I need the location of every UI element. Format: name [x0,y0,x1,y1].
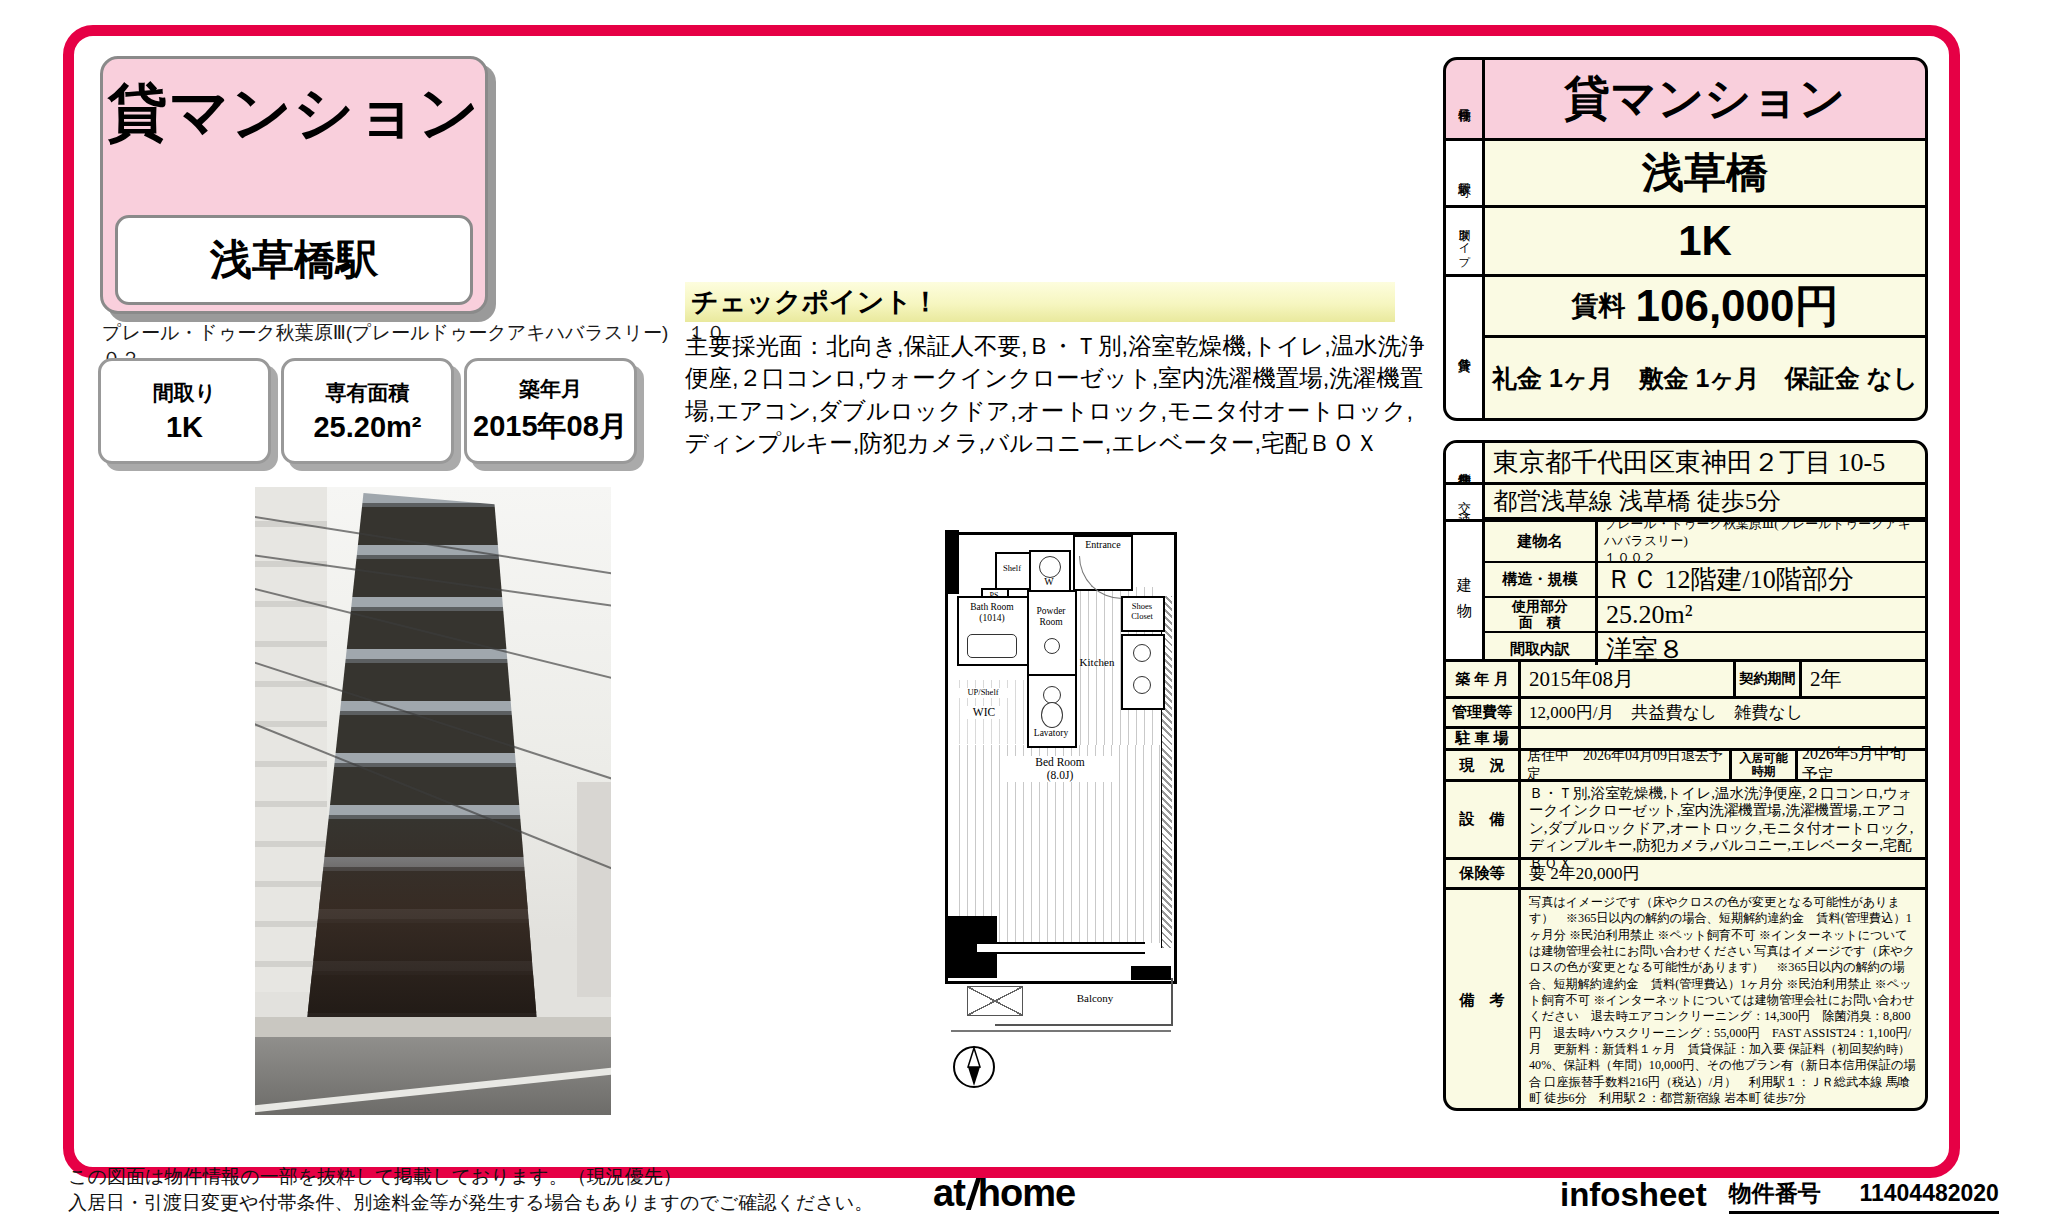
info-box-label: 築年月 [519,375,582,403]
summary-layout-type: 1K [1485,208,1925,274]
athome-logo: at home [933,1172,1075,1215]
detail-status: 居住中 2026年04月09日退去予定 [1521,751,1729,779]
info-box-value: 2015年08月 [473,407,628,447]
room-shoes-closet: Shoes Closet [1121,596,1165,632]
row-label-status: 現 況 [1446,751,1521,779]
room-label-powder: Powder Room [1029,606,1073,627]
summary-table: 物件種目 貸マンション 最寄駅 浅草橋 間取タイプ 1K 賃貸条件 賃料 106… [1443,57,1928,421]
checkpoint-heading-band: チェックポイント！ [685,282,1395,322]
detail-access: 都営浅草線 浅草橋 徒歩5分 [1485,485,1925,517]
summary-station: 浅草橋 [1485,141,1925,205]
checkpoint-body: 主要採光面：北向き,保証人不要,Ｂ・Ｔ別,浴室乾燥機,トイレ,温水洗浄便座,２口… [685,330,1433,460]
info-box-label: 間取り [153,379,217,407]
room-label-bath: Bath Room (1014) [961,602,1023,623]
detail-fees: 12,000円/月 共益費なし 雑費なし [1521,699,1925,726]
info-box-value: 25.20m² [313,411,421,444]
property-number: 物件番号 11404482020 [1729,1178,1999,1214]
row-label-parking: 駐 車 場 [1446,729,1521,748]
sublabel-contract: 契約期間 [1733,662,1799,696]
row-label-equipment: 設 備 [1446,782,1521,857]
photo-sidewalk [255,1017,611,1037]
detail-equipment: Ｂ・Ｔ別,浴室乾燥機,トイレ,温水洗浄便座,２口コンロ,ウォークインクローゼット… [1521,782,1925,857]
row-label-property-type: 物件種目 [1446,60,1482,138]
room-label-lavatory: Lavatory [1029,728,1073,739]
info-box-label: 専有面積 [326,379,410,407]
row-label-notes: 備 考 [1446,890,1521,1110]
building-photo [255,487,611,1115]
room-label-bedroom: Bed Room (8.0J) [1005,756,1115,782]
sublabel-movein: 入居可能 時期 [1729,751,1795,779]
athome-logo-at: at [933,1172,965,1215]
bedroom-window [977,942,1145,954]
sublabel-structure: 構造・規模 [1485,563,1595,596]
detail-address: 東京都千代田区東神田２丁目 10-5 [1482,443,1925,482]
title-box: 貸マンション 浅草橋駅 [100,56,488,314]
room-label-balcony: Balcony [1055,992,1135,1004]
row-label-fees: 管理費等 [1446,699,1521,726]
infosheet-block: infosheet 物件番号 11404482020 [1560,1176,1999,1214]
toilet-bowl-icon [1041,702,1063,728]
washer-icon [1039,556,1061,578]
info-box-madori: 間取り 1K [98,358,271,464]
room-label-upshelf: UP/Shelf [955,688,1011,698]
room-lavatory: Lavatory [1027,674,1077,748]
detail-area: 25.20m² [1595,598,1925,631]
detail-building-name: プレール・ドゥーク秋葉原Ⅲ(プレールドゥークアキハバラスリー) １００２ [1595,522,1925,561]
row-label-station: 最寄駅 [1446,141,1482,205]
checkpoint-heading: チェックポイント！ [685,284,939,320]
infosheet-label: infosheet [1560,1176,1707,1214]
room-label-kitchen: Kitchen [1071,656,1123,668]
info-box-area: 専有面積 25.20m² [281,358,454,464]
footer-disclaimer-line2: 入居日・引渡日変更や付帯条件、別途料金等が発生する場合もありますのでご確認くださ… [68,1190,873,1216]
room-label-shelf: Shelf [997,564,1027,574]
rent-label: 賃料 [1571,288,1625,324]
row-label-layout-type: 間取タイプ [1446,208,1482,274]
summary-rent: 賃料 106,000円 [1485,277,1925,335]
bathtub-icon [967,634,1017,658]
room-powder: Powder Room [1027,590,1077,676]
wall-block [945,530,959,594]
row-label-rent-terms: 賃貸条件 [1446,277,1482,418]
detail-built: 2015年08月 [1521,662,1733,696]
detail-movein: 2026年5月中旬予定 [1795,751,1925,779]
ac-unit-box [967,986,1023,1016]
room-bath: Bath Room (1014) [957,596,1029,666]
info-box-value: 1K [166,411,203,444]
info-box-built: 築年月 2015年08月 [464,358,637,464]
property-type-badge: 貸マンション [103,73,485,154]
summary-property-type: 貸マンション [1485,60,1925,138]
footer-disclaimer-line1: この図面は物件情報の一部を抜粋して掲載しております。（現況優先） [68,1164,682,1190]
kitchen-counter [1121,634,1165,710]
station-badge: 浅草橋駅 [210,232,378,288]
detail-table: 物件所在地 東京都千代田区東神田２丁目 10-5 交通 都営浅草線 浅草橋 徒歩… [1443,440,1928,1111]
detail-insurance: 要 2年20,000円 [1521,860,1925,887]
row-label-address: 物件所在地 [1446,443,1482,482]
property-number-value: 11404482020 [1859,1180,1998,1206]
room-label-washer: W [1031,576,1067,587]
sublabel-building-name: 建物名 [1485,522,1595,561]
detail-notes: 写真はイメージです（床やクロスの色が変更となる可能性があります） ※365日以内… [1521,890,1925,1110]
row-label-insurance: 保険等 [1446,860,1521,887]
sink-icon [1044,638,1060,654]
room-shelf: Shelf [995,552,1031,590]
detail-structure: ＲＣ 12階建/10階部分 [1595,563,1925,596]
sublabel-area: 使用部分 面 積 [1485,598,1595,631]
detail-contract: 2年 [1799,662,1925,696]
photo-main-building [303,493,555,1057]
row-label-building: 建物 [1446,522,1482,659]
stove-burner-icon [1133,644,1151,662]
room-label-shoes: Shoes Closet [1123,602,1161,621]
infosheet-page: 貸マンション 浅草橋駅 プレール・ドゥーク秋葉原Ⅲ(プレールドゥークアキハバラス… [0,0,2056,1222]
kitchen-sink-icon [1133,676,1151,694]
compass-icon [951,1044,997,1090]
ground-line [951,1030,1171,1032]
floor-plan: Entrance Shelf W PS Bath Room (1014) Pow… [945,530,1191,1115]
rent-value: 106,000円 [1635,277,1838,336]
room-label-wic: WIC [961,706,1007,719]
athome-logo-home: home [978,1172,1075,1215]
summary-terms: 礼金 1ヶ月 敷金 1ヶ月 保証金 なし [1485,338,1925,418]
row-label-access: 交通 [1446,485,1482,519]
station-box: 浅草橋駅 [115,215,473,305]
photo-neighbor-building-right [577,782,611,997]
property-number-label: 物件番号 [1729,1180,1821,1206]
room-label-entrance: Entrance [1077,539,1129,550]
row-label-built: 築 年 月 [1446,662,1521,696]
